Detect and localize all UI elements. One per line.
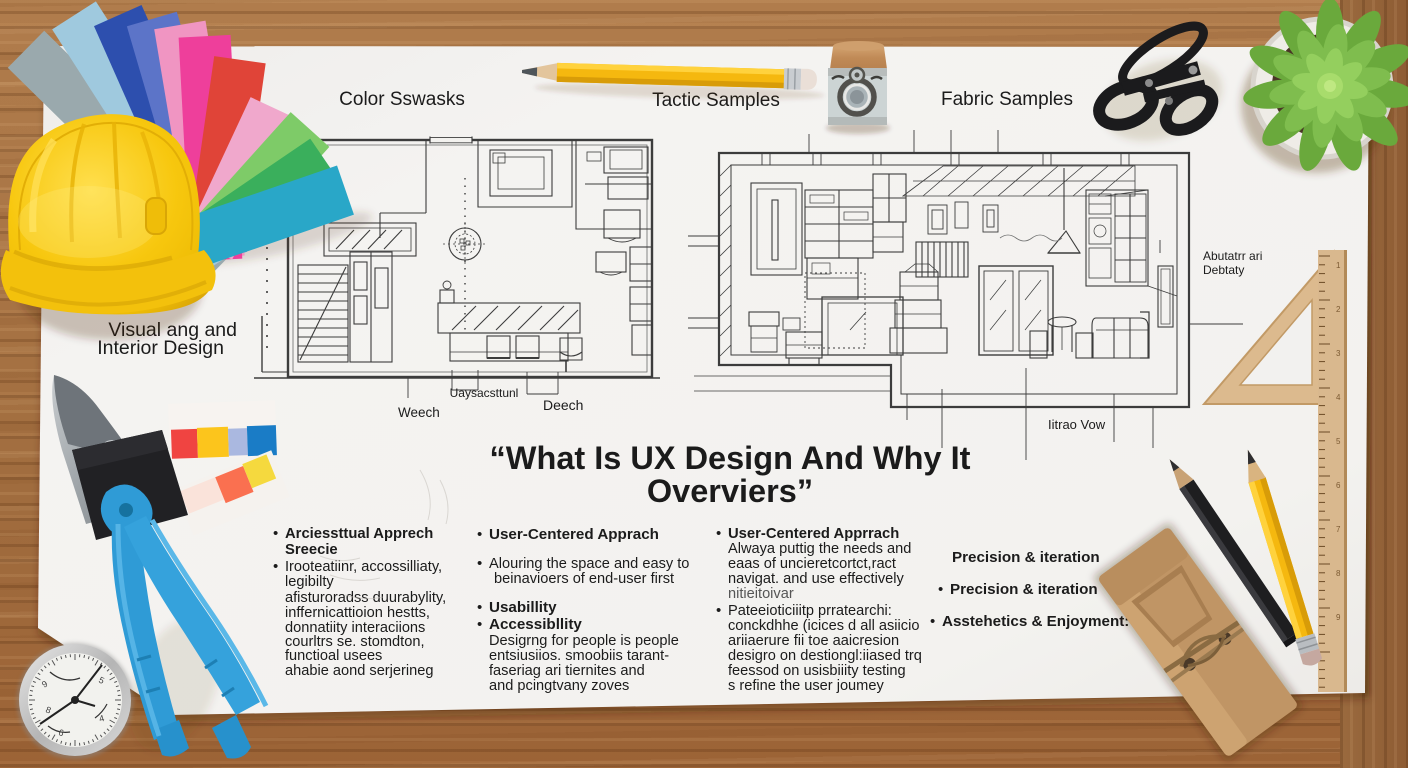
svg-text:s refine the user joumey: s refine the user joumey xyxy=(728,678,884,694)
svg-text:eaas of uncieretcortct,ract: eaas of uncieretcortct,ract xyxy=(728,556,896,572)
svg-text:Color Sswasks: Color Sswasks xyxy=(339,89,465,110)
svg-text:ariiaerure fii toe aaicresion: ariiaerure fii toe aaicresion xyxy=(728,633,899,649)
svg-text:Asstehetics & Enjoyment:: Asstehetics & Enjoyment: xyxy=(942,613,1129,630)
svg-text:•: • xyxy=(477,526,482,543)
svg-text:4: 4 xyxy=(1336,393,1341,402)
svg-text:Alwaya puttig the needs and: Alwaya puttig the needs and xyxy=(728,541,911,557)
svg-text:User-Centered Apprrach: User-Centered Apprrach xyxy=(728,526,899,542)
svg-text:6: 6 xyxy=(1336,481,1341,490)
svg-text:•: • xyxy=(477,616,482,633)
svg-text:Debtaty: Debtaty xyxy=(1203,263,1244,277)
svg-text:Uaysacsttunl: Uaysacsttunl xyxy=(450,386,519,400)
svg-text:1: 1 xyxy=(1336,261,1341,270)
svg-text:Irooteatiinr, accossilliaty,: Irooteatiinr, accossilliaty, xyxy=(285,559,442,575)
svg-text:Deech: Deech xyxy=(543,397,583,413)
svg-text:Desigrng for people is people: Desigrng for people is people xyxy=(489,633,679,649)
svg-text:•: • xyxy=(938,581,943,598)
svg-text:Alouring the space and easy to: Alouring the space and easy to xyxy=(489,556,689,572)
svg-text:Interior Design: Interior Design xyxy=(97,337,224,359)
svg-text:ahabie aond serjerineg: ahabie aond serjerineg xyxy=(285,663,433,679)
svg-text:•: • xyxy=(930,613,935,630)
svg-text:afisturoradss duurabylity,: afisturoradss duurabylity, xyxy=(285,590,446,606)
svg-text:2: 2 xyxy=(1336,305,1341,314)
svg-text:and pcingtvany zoves: and pcingtvany zoves xyxy=(489,678,629,694)
svg-text:entsiusiios. smoobiis tarant-: entsiusiios. smoobiis tarant- xyxy=(489,648,669,664)
svg-text:desigro on destiongl:iiased tr: desigro on destiongl:iiased trq xyxy=(728,648,922,664)
svg-text:conckdhhe (icices d all asiici: conckdhhe (icices d all asiicio xyxy=(728,618,919,634)
svg-text:3: 3 xyxy=(1336,349,1341,358)
svg-text:Precision & iteration: Precision & iteration xyxy=(950,581,1098,598)
svg-text:Iitrao Vow: Iitrao Vow xyxy=(1048,417,1106,432)
svg-text:7: 7 xyxy=(1336,525,1341,534)
svg-text:Pateeioticiiitp prratearchi:: Pateeioticiiitp prratearchi: xyxy=(728,603,892,619)
svg-text:“What Is UX Design And Why It: “What Is UX Design And Why It xyxy=(490,440,971,476)
svg-text:Abutatrr ari: Abutatrr ari xyxy=(1203,249,1262,263)
svg-text:nitieitoivar: nitieitoivar xyxy=(728,586,794,602)
svg-text:•: • xyxy=(273,525,278,542)
svg-text:Fabric Samples: Fabric Samples xyxy=(941,89,1073,110)
svg-text:5: 5 xyxy=(1336,437,1341,446)
svg-text:User-Centered Apprach: User-Centered Apprach xyxy=(489,526,659,543)
svg-text:Sreecie: Sreecie xyxy=(285,542,338,558)
svg-text:•: • xyxy=(716,602,721,619)
svg-text:Accessibllity: Accessibllity xyxy=(489,616,582,633)
svg-text:•: • xyxy=(716,525,721,542)
svg-text:•: • xyxy=(477,555,482,572)
svg-text:•: • xyxy=(477,599,482,616)
svg-text:feessod on usisbiiity testing: feessod on usisbiiity testing xyxy=(728,663,906,679)
svg-text:legibilty: legibilty xyxy=(285,574,334,590)
svg-text:•: • xyxy=(273,558,278,575)
svg-text:inffernicattioion hestts,: inffernicattioion hestts, xyxy=(285,605,430,621)
svg-text:faseriag ari tiernites and: faseriag ari tiernites and xyxy=(489,663,645,679)
svg-text:Usabillity: Usabillity xyxy=(489,599,557,616)
svg-text:8: 8 xyxy=(1336,569,1341,578)
svg-text:Overviers”: Overviers” xyxy=(647,473,813,509)
svg-text:beinavioers of end-user first: beinavioers of end-user first xyxy=(494,571,674,587)
svg-text:Weech: Weech xyxy=(398,405,440,420)
svg-text:navigat. and use effectively: navigat. and use effectively xyxy=(728,571,904,587)
svg-text:Arciessttual Apprech: Arciessttual Apprech xyxy=(285,526,433,542)
svg-text:Precision & iteration: Precision & iteration xyxy=(952,549,1100,566)
svg-text:functioal usees: functioal usees xyxy=(285,648,382,664)
svg-text:9: 9 xyxy=(1336,613,1341,622)
